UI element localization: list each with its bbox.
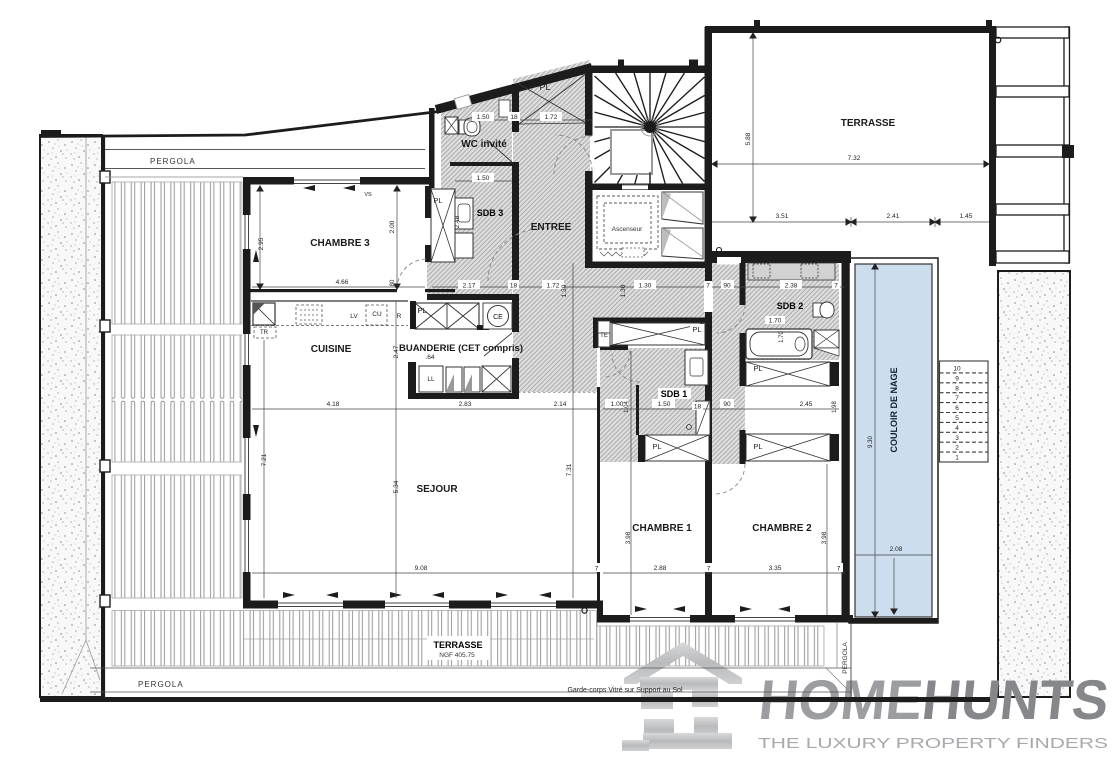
svg-text:2.88: 2.88 [654, 565, 667, 572]
svg-text:.64: .64 [425, 354, 434, 361]
svg-text:2.83: 2.83 [459, 401, 472, 408]
svg-text:NGF 405.75: NGF 405.75 [439, 652, 475, 659]
svg-text:1.50: 1.50 [477, 114, 490, 121]
svg-text:10: 10 [953, 366, 961, 373]
svg-text:SDB 1: SDB 1 [661, 389, 688, 399]
svg-text:1.30: 1.30 [561, 284, 568, 297]
svg-text:Garde-corps Vitré sur Support: Garde-corps Vitré sur Support au Sol [567, 687, 682, 694]
svg-text:1.72: 1.72 [545, 114, 558, 121]
svg-text:1.50: 1.50 [658, 401, 671, 408]
svg-text:5.34: 5.34 [393, 480, 400, 493]
svg-text:LL: LL [427, 376, 435, 383]
svg-text:1.45: 1.45 [960, 213, 973, 220]
svg-text:8: 8 [955, 385, 959, 392]
svg-text:CUISINE: CUISINE [311, 344, 352, 355]
svg-text:CE: CE [493, 314, 503, 321]
svg-text:7: 7 [834, 283, 838, 290]
svg-text:7: 7 [706, 283, 710, 290]
svg-text:LV: LV [350, 313, 358, 320]
svg-text:7: 7 [955, 395, 959, 402]
svg-text:7: 7 [707, 566, 711, 573]
svg-text:18: 18 [510, 114, 518, 121]
svg-text:7.31: 7.31 [566, 463, 573, 476]
svg-text:PL: PL [753, 442, 762, 451]
svg-text:2.41: 2.41 [887, 213, 900, 220]
svg-text:18: 18 [510, 283, 518, 290]
svg-text:4: 4 [955, 425, 959, 432]
svg-text:5.88: 5.88 [745, 132, 752, 145]
svg-text:3.51: 3.51 [776, 213, 789, 220]
svg-text:5: 5 [955, 415, 959, 422]
svg-text:PERGOLA: PERGOLA [138, 680, 184, 689]
svg-text:1.00: 1.00 [611, 401, 624, 408]
svg-text:4.18: 4.18 [327, 401, 340, 408]
svg-text:WC invité: WC invité [461, 139, 507, 150]
svg-text:6: 6 [955, 405, 959, 412]
svg-text:R: R [397, 313, 402, 320]
svg-text:80: 80 [390, 279, 396, 286]
svg-text:1.50: 1.50 [477, 175, 490, 182]
svg-text:2.38: 2.38 [785, 283, 798, 290]
svg-text:2: 2 [955, 445, 959, 452]
svg-text:SEJOUR: SEJOUR [416, 484, 458, 495]
svg-text:1.72: 1.72 [547, 283, 560, 290]
svg-text:2.95: 2.95 [258, 237, 265, 250]
svg-text:CHAMBRE 1: CHAMBRE 1 [632, 523, 692, 534]
svg-text:9.08: 9.08 [415, 565, 428, 572]
svg-text:TERRASSE: TERRASSE [433, 640, 482, 650]
svg-text:TR: TR [260, 330, 269, 336]
svg-text:PL: PL [433, 196, 442, 205]
svg-text:PL: PL [753, 364, 762, 373]
svg-text:THE LUXURY PROPERTY FINDERS: THE LUXURY PROPERTY FINDERS [758, 736, 1108, 752]
svg-text:SDB 2: SDB 2 [777, 301, 804, 311]
svg-text:BUANDERIE (CET compris): BUANDERIE (CET compris) [399, 343, 523, 354]
svg-text:9.30: 9.30 [868, 436, 874, 448]
svg-text:7: 7 [595, 566, 599, 573]
svg-text:TERRASSE: TERRASSE [841, 118, 896, 129]
svg-text:1.70: 1.70 [779, 331, 785, 343]
svg-text:2.48: 2.48 [454, 215, 461, 228]
svg-text:COULOIR DE NAGE: COULOIR DE NAGE [889, 367, 899, 452]
svg-text:TE: TE [600, 333, 608, 339]
svg-text:90: 90 [723, 283, 731, 290]
svg-text:9: 9 [955, 375, 959, 382]
svg-text:CHAMBRE 3: CHAMBRE 3 [310, 238, 370, 249]
svg-text:CHAMBRE 2: CHAMBRE 2 [752, 523, 812, 534]
svg-text:1.98: 1.98 [832, 401, 838, 413]
svg-text:1.30: 1.30 [639, 283, 652, 290]
svg-text:7.21: 7.21 [261, 453, 268, 466]
svg-text:PERGOLA: PERGOLA [150, 157, 196, 166]
svg-text:1.04: 1.04 [624, 401, 630, 413]
svg-text:Ascenseur: Ascenseur [612, 226, 644, 233]
svg-text:PL: PL [652, 442, 661, 451]
svg-text:CU: CU [372, 311, 382, 318]
svg-text:1.30: 1.30 [620, 284, 627, 297]
svg-text:2.14: 2.14 [554, 401, 567, 408]
svg-text:3.35: 3.35 [769, 565, 782, 572]
svg-text:PERGOLA: PERGOLA [842, 642, 849, 674]
svg-text:SDB 3: SDB 3 [477, 208, 504, 218]
svg-text:3.98: 3.98 [821, 531, 828, 544]
svg-text:90: 90 [723, 401, 731, 408]
svg-text:18: 18 [694, 404, 702, 411]
svg-text:2.00: 2.00 [389, 220, 396, 233]
svg-text:3: 3 [955, 435, 959, 442]
svg-text:1: 1 [955, 455, 959, 462]
svg-text:2.08: 2.08 [890, 546, 903, 553]
svg-text:PL: PL [692, 325, 701, 334]
svg-text:2.17: 2.17 [463, 283, 476, 290]
svg-text:7.32: 7.32 [848, 155, 861, 162]
svg-text:PL: PL [417, 306, 426, 315]
svg-text:2.47: 2.47 [393, 345, 400, 358]
svg-text:7: 7 [837, 566, 841, 573]
svg-text:ENTREE: ENTREE [531, 222, 572, 233]
svg-text:1.70: 1.70 [769, 318, 782, 325]
svg-text:3.98: 3.98 [625, 531, 632, 544]
svg-text:4.66: 4.66 [336, 279, 349, 286]
svg-text:VS: VS [364, 192, 372, 198]
svg-text:2.45: 2.45 [800, 401, 813, 408]
svg-text:PL: PL [539, 82, 550, 92]
